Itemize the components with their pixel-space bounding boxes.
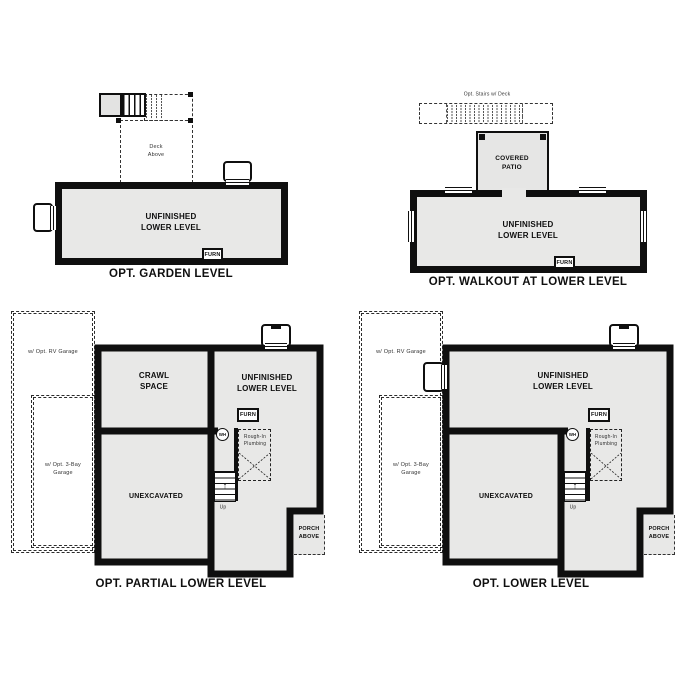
crawl-space-label: CRAWL SPACE <box>139 370 169 392</box>
up-label: Up <box>220 505 227 512</box>
partial-lower-room-label: UNFINISHED LOWER LEVEL <box>237 372 297 394</box>
window <box>579 187 606 193</box>
stair-landing <box>99 93 122 117</box>
window <box>613 343 635 349</box>
porch-above-label: PORCH ABOVE <box>649 525 670 542</box>
furnace: FURN <box>202 248 223 261</box>
up-arrow-icon: ↑ <box>223 482 228 491</box>
floor-plan-sheet: Deck Above UNFINISHED LOWER LEVEL FURN O… <box>0 0 687 687</box>
window <box>445 187 472 193</box>
plumbing-x-pattern <box>239 453 270 479</box>
up-label: Up <box>570 505 577 512</box>
window <box>226 179 249 186</box>
lower-level-title: OPT. LOWER LEVEL <box>473 576 590 592</box>
furnace: FURN <box>588 408 610 422</box>
deck-corner-post <box>116 118 121 123</box>
partial-lower-title: OPT. PARTIAL LOWER LEVEL <box>96 576 267 592</box>
furnace: FURN <box>237 408 259 422</box>
up-arrow-icon: ↑ <box>573 482 578 491</box>
deck-corner-post <box>188 118 193 123</box>
walkout-room-label: UNFINISHED LOWER LEVEL <box>498 219 558 241</box>
three-bay-garage-label: w/ Opt. 3-Bay Garage <box>393 461 429 478</box>
rough-in-plumbing-label: Rough-In Plumbing <box>595 434 617 448</box>
window <box>50 206 57 230</box>
unexcavated-label: UNEXCAVATED <box>479 492 533 502</box>
window <box>408 211 415 242</box>
deck-stair-treads-dashed <box>146 95 166 119</box>
opt-deck-stair-treads <box>446 104 523 123</box>
window <box>265 343 287 349</box>
water-heater: WH <box>566 428 579 441</box>
unexcavated-label: UNEXCAVATED <box>129 492 183 502</box>
porch-above-label: PORCH ABOVE <box>299 525 320 542</box>
walkout-title: OPT. WALKOUT AT LOWER LEVEL <box>429 274 627 290</box>
opt-stairs-deck-label: Opt. Stairs w/ Deck <box>464 92 511 99</box>
garden-level-title: OPT. GARDEN LEVEL <box>109 266 233 282</box>
rv-garage-label: w/ Opt. RV Garage <box>376 348 426 356</box>
window <box>441 365 448 389</box>
garden-level-room-label: UNFINISHED LOWER LEVEL <box>141 211 201 233</box>
rv-garage-label: w/ Opt. RV Garage <box>28 348 78 356</box>
deck-above-label: Deck Above <box>148 143 165 160</box>
covered-patio-label: COVERED PATIO <box>495 154 529 172</box>
exterior-stairs <box>121 93 146 117</box>
lower-level-room-label: UNFINISHED LOWER LEVEL <box>533 370 593 392</box>
three-bay-garage-label: w/ Opt. 3-Bay Garage <box>45 461 81 478</box>
patio-opening <box>502 188 526 198</box>
window <box>640 211 647 242</box>
water-heater: WH <box>216 428 229 441</box>
deck-corner-post <box>188 92 193 97</box>
plumbing-x-pattern <box>591 453 621 479</box>
rough-in-plumbing-label: Rough-In Plumbing <box>244 434 266 448</box>
furnace: FURN <box>554 256 575 269</box>
